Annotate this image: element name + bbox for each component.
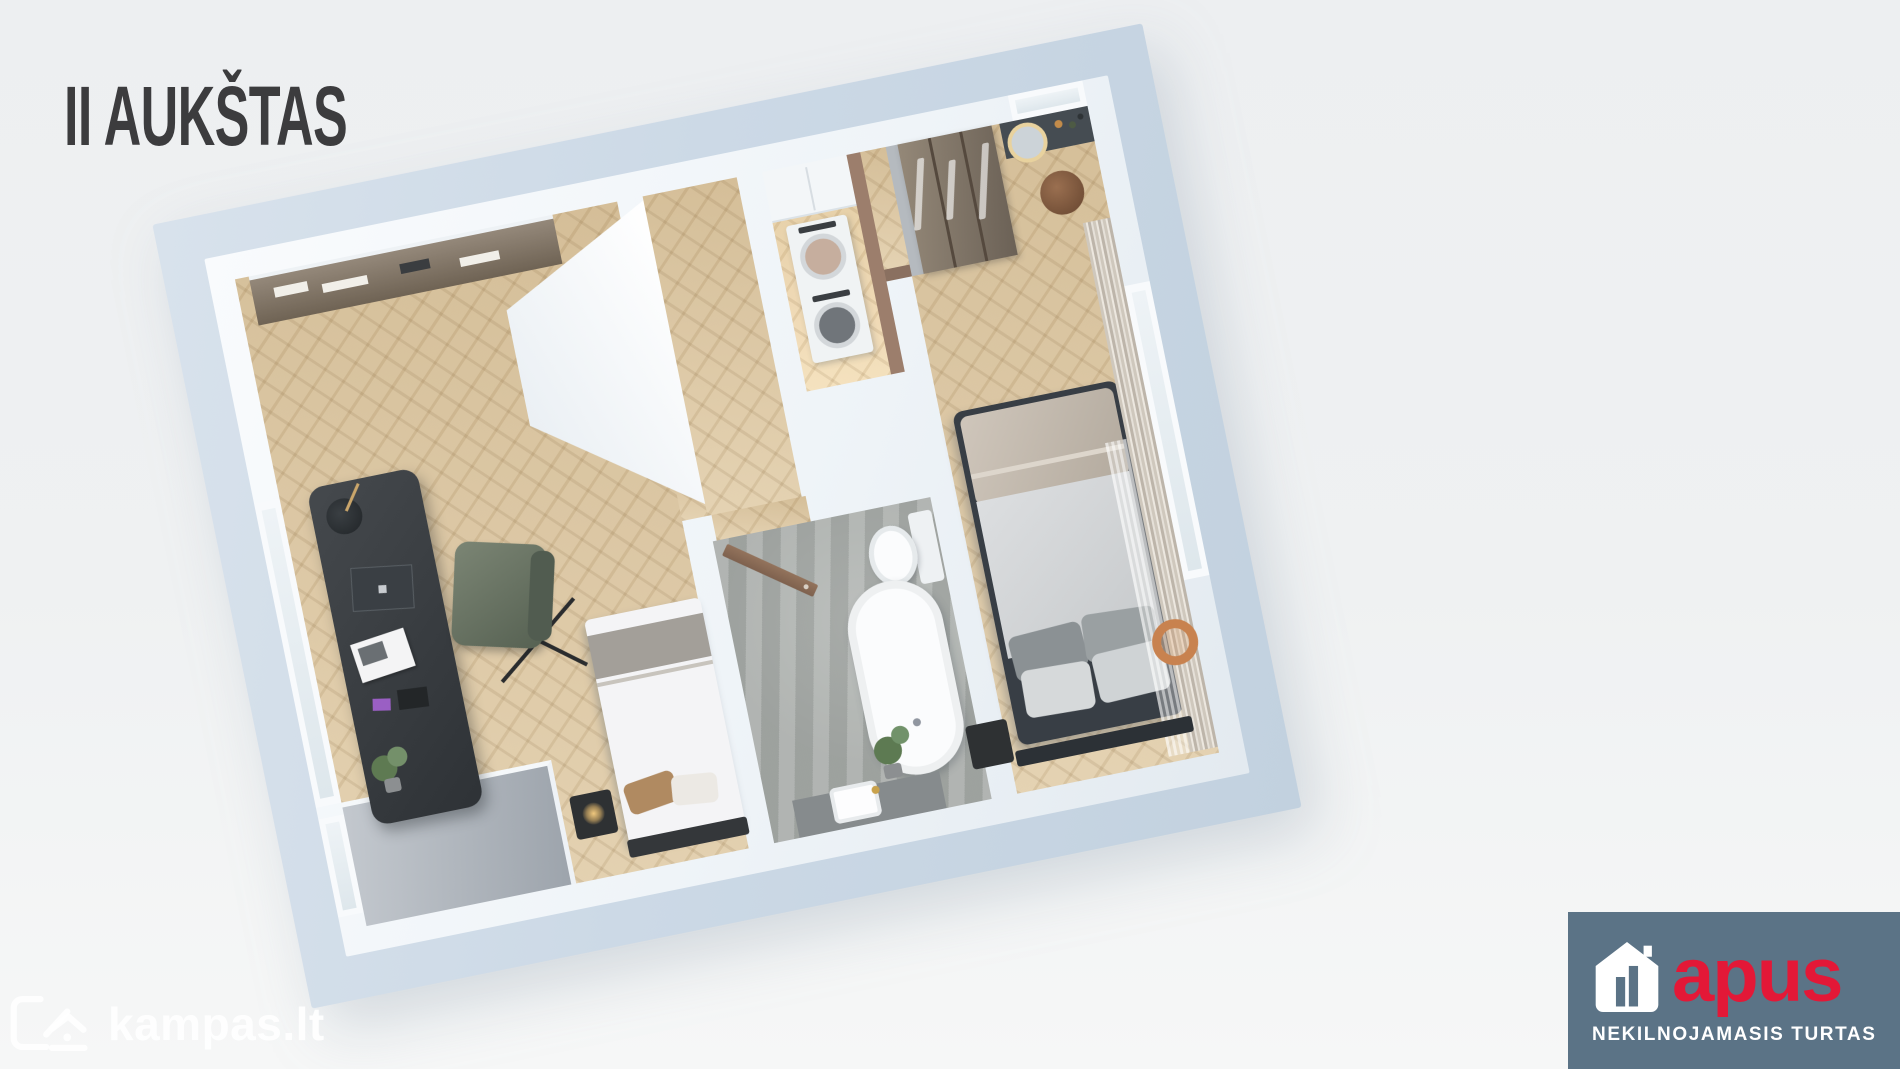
hanging-clothes bbox=[914, 157, 924, 230]
floorplan-screenshot: { "header": { "title": "II AUKŠTAS" }, "… bbox=[0, 0, 1900, 1069]
watermark-text: kampas.lt bbox=[108, 997, 325, 1051]
page-title: II AUKŠTAS bbox=[64, 74, 347, 158]
bedroom-nightstand-left bbox=[965, 718, 1015, 769]
brand-name: apus bbox=[1672, 944, 1841, 1009]
kampas-watermark: kampas.lt bbox=[8, 992, 325, 1056]
bed-blanket-band bbox=[587, 613, 711, 680]
hanging-clothes bbox=[979, 142, 989, 220]
books bbox=[459, 250, 500, 267]
nightstand-lamp bbox=[581, 801, 607, 827]
kampas-house-k-icon bbox=[8, 992, 94, 1056]
control-panel bbox=[798, 220, 836, 233]
brand-tagline: NEKILNOJAMASIS TURTAS bbox=[1592, 1024, 1880, 1046]
desk-accessory bbox=[373, 698, 391, 710]
plant-pot bbox=[384, 777, 402, 794]
chair-back bbox=[527, 550, 555, 641]
office-nightstand bbox=[569, 789, 619, 840]
hanging-clothes bbox=[946, 159, 955, 220]
laptop bbox=[350, 564, 415, 612]
dryer-door bbox=[796, 229, 850, 283]
brand-logo-box: apus NEKILNOJAMASIS TURTAS bbox=[1568, 912, 1900, 1069]
books bbox=[273, 281, 308, 298]
dryer-unit bbox=[785, 214, 859, 291]
washer-door bbox=[810, 298, 864, 352]
desk-chair bbox=[451, 541, 547, 649]
house-icon bbox=[1592, 938, 1662, 1016]
washer-unit bbox=[799, 283, 873, 360]
bed-pillow bbox=[1020, 660, 1097, 719]
plant-pot bbox=[883, 762, 903, 779]
books bbox=[399, 258, 430, 274]
books bbox=[322, 275, 369, 293]
control-panel bbox=[812, 289, 850, 302]
desk-camera bbox=[397, 686, 429, 710]
brand-lockup: apus bbox=[1592, 938, 1880, 1016]
floorplan-3d-scene bbox=[152, 23, 1301, 1008]
bed-pillow bbox=[670, 772, 719, 806]
